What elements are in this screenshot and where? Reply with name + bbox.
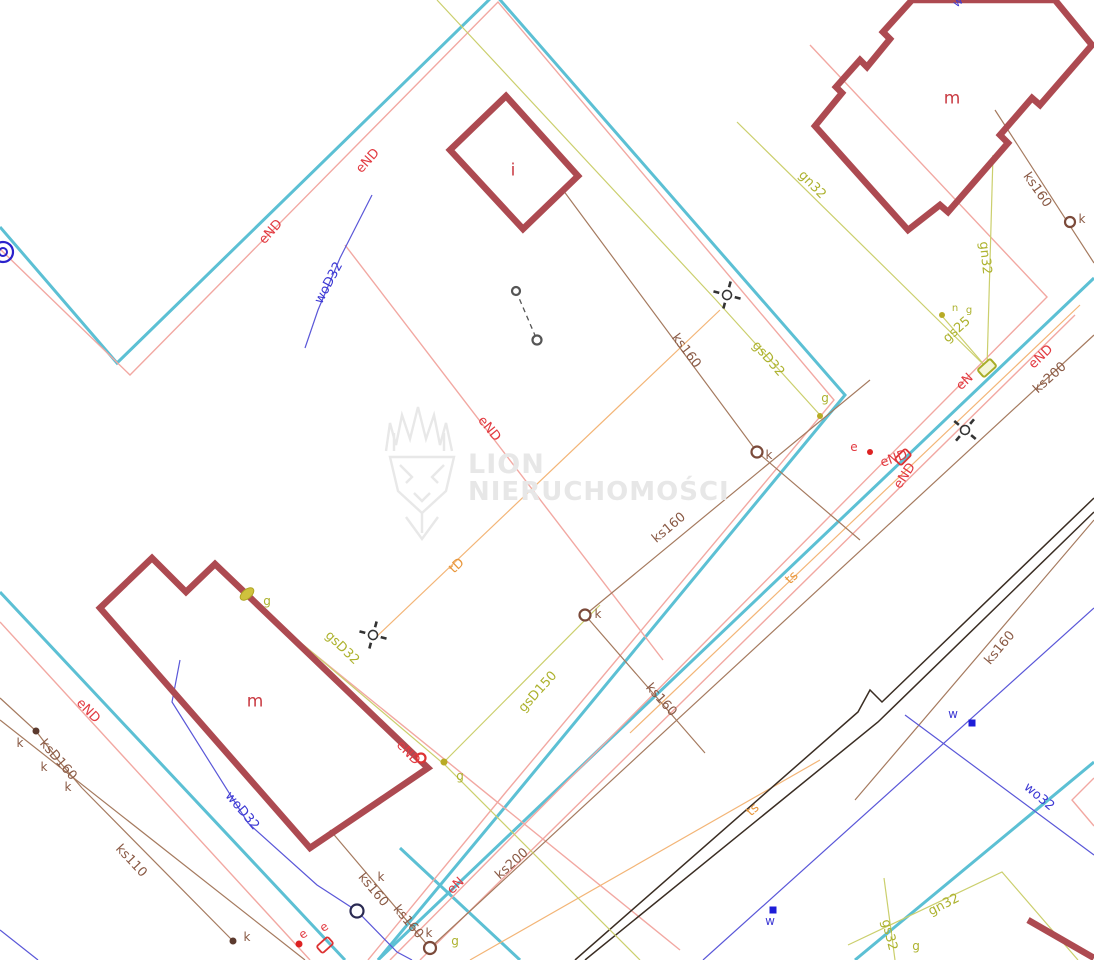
electric-cabinet-icon [316, 937, 333, 954]
building-m-bottom-left [100, 558, 428, 848]
manhole-icon [351, 905, 364, 918]
gas-lines-g [247, 0, 1078, 960]
node-dot-icon [817, 413, 823, 419]
hydrant-square-icon [770, 907, 777, 914]
hydrant-square-icon [969, 720, 976, 727]
manhole-icon [752, 447, 763, 458]
survey-dashed-line [516, 291, 537, 340]
manhole-icon [1065, 217, 1075, 227]
water-lines-wo [0, 195, 1094, 960]
manhole-icon [580, 610, 591, 621]
building-edge-bottom-right [1028, 920, 1094, 958]
cadastral-map[interactable]: LION NIERUCHOMOŚCI eNDeNDeNDeNDeNDeNeNeN… [0, 0, 1094, 960]
node-dot-icon [296, 941, 303, 948]
survey-cross-icon [356, 618, 390, 652]
building-i [450, 96, 578, 229]
node-dot-icon [939, 312, 945, 318]
road-edge-lines [575, 498, 1094, 960]
well-icon [0, 242, 13, 262]
manhole-icon [417, 754, 426, 763]
node-dot-icon [33, 728, 40, 735]
manhole-icon [424, 942, 436, 954]
node-dot-icon [230, 938, 237, 945]
survey-cross-icon [710, 278, 744, 312]
manhole-icon [512, 287, 520, 295]
survey-cross-icon [945, 410, 984, 449]
node-dot-icon [441, 759, 448, 766]
map-canvas [0, 0, 1094, 960]
manhole-icon [533, 336, 542, 345]
node-dot-icon [867, 449, 873, 455]
sewer-lines-ks [0, 110, 1094, 960]
building-outlines [100, 0, 1094, 958]
electric-cabinet-icon [895, 449, 912, 466]
